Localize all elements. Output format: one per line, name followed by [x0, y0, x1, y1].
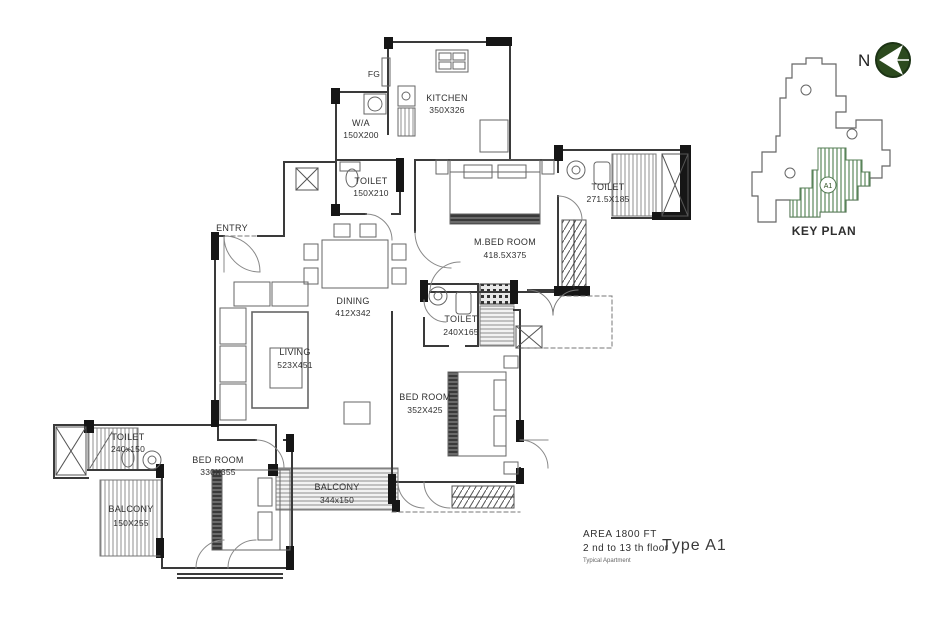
dims-dining: 412X342 — [335, 308, 371, 318]
floor-plan-page: FG KITCHEN 350X326 W/A 150X200 TOILET 15… — [0, 0, 950, 635]
dims-bedroom2: 352X425 — [407, 405, 443, 415]
dims-toilet-top: 150X210 — [353, 188, 389, 198]
label-common-toilet: TOILET — [444, 314, 477, 324]
dims-kitchen: 350X326 — [429, 105, 465, 115]
dims-bedroom3: 330X355 — [200, 467, 236, 477]
apartment-plan: FG KITCHEN 350X326 W/A 150X200 TOILET 15… — [54, 37, 691, 578]
north-arrow-icon — [876, 43, 910, 77]
footer-type: Type A1 — [662, 537, 727, 554]
dims-balcony-side: 150X255 — [113, 518, 149, 528]
stove-icon — [436, 50, 468, 72]
common-shower-hatch — [480, 306, 514, 346]
label-fg: FG — [368, 69, 380, 79]
dims-living: 523X451 — [277, 360, 313, 370]
key-plan: N A1 KEY PLAN — [752, 43, 910, 238]
label-toilet3: TOILET — [111, 432, 144, 442]
dims-toilet3: 240x150 — [111, 444, 145, 454]
kitchen-cabinet — [480, 120, 508, 152]
washing-machine-icon — [364, 94, 386, 114]
footer-floors: 2 nd to 13 th floor — [583, 543, 669, 554]
north-label: N — [858, 51, 870, 70]
keyplan-title: KEY PLAN — [792, 224, 856, 238]
footer-note: Typical Apartment — [583, 558, 631, 564]
keyplan-a1-text: A1 — [824, 183, 833, 190]
master-toilet-fixtures — [567, 161, 610, 184]
dims-wa: 150X200 — [343, 130, 379, 140]
dims-common-toilet: 240X165 — [443, 327, 479, 337]
dims-balcony-main: 344x150 — [320, 495, 354, 505]
label-toilet-top: TOILET — [354, 176, 387, 186]
label-bedroom3: BED ROOM — [192, 455, 243, 465]
label-bedroom2: BED ROOM — [399, 392, 450, 402]
footer-area: AREA 1800 FT — [583, 529, 657, 540]
label-living: LIVING — [279, 347, 310, 357]
kitchen-sink-icon — [398, 86, 415, 136]
label-entry: ENTRY — [216, 223, 248, 233]
label-kitchen: KITCHEN — [426, 93, 468, 103]
floor-plan-canvas: FG KITCHEN 350X326 W/A 150X200 TOILET 15… — [0, 0, 950, 635]
room-labels: FG KITCHEN 350X326 W/A 150X200 TOILET 15… — [108, 69, 629, 528]
label-dining: DINING — [336, 296, 369, 306]
duct-shaft — [480, 284, 514, 304]
master-bed-icon — [436, 160, 554, 224]
bedroom2-bed-icon — [448, 356, 518, 474]
dims-master-toilet: 271.5X185 — [587, 194, 630, 204]
label-wa: W/A — [352, 118, 370, 128]
dining-table-icon — [304, 224, 406, 288]
label-balcony-side: BALCONY — [108, 504, 153, 514]
footer-block: AREA 1800 FT 2 nd to 13 th floor Typical… — [583, 529, 727, 564]
label-balcony-main: BALCONY — [314, 482, 359, 492]
label-master-toilet: TOILET — [591, 182, 624, 192]
label-master-bedroom: M.BED ROOM — [474, 237, 536, 247]
dims-master-bedroom: 418.5X375 — [484, 250, 527, 260]
keyplan-a1-marker: A1 — [820, 177, 836, 193]
